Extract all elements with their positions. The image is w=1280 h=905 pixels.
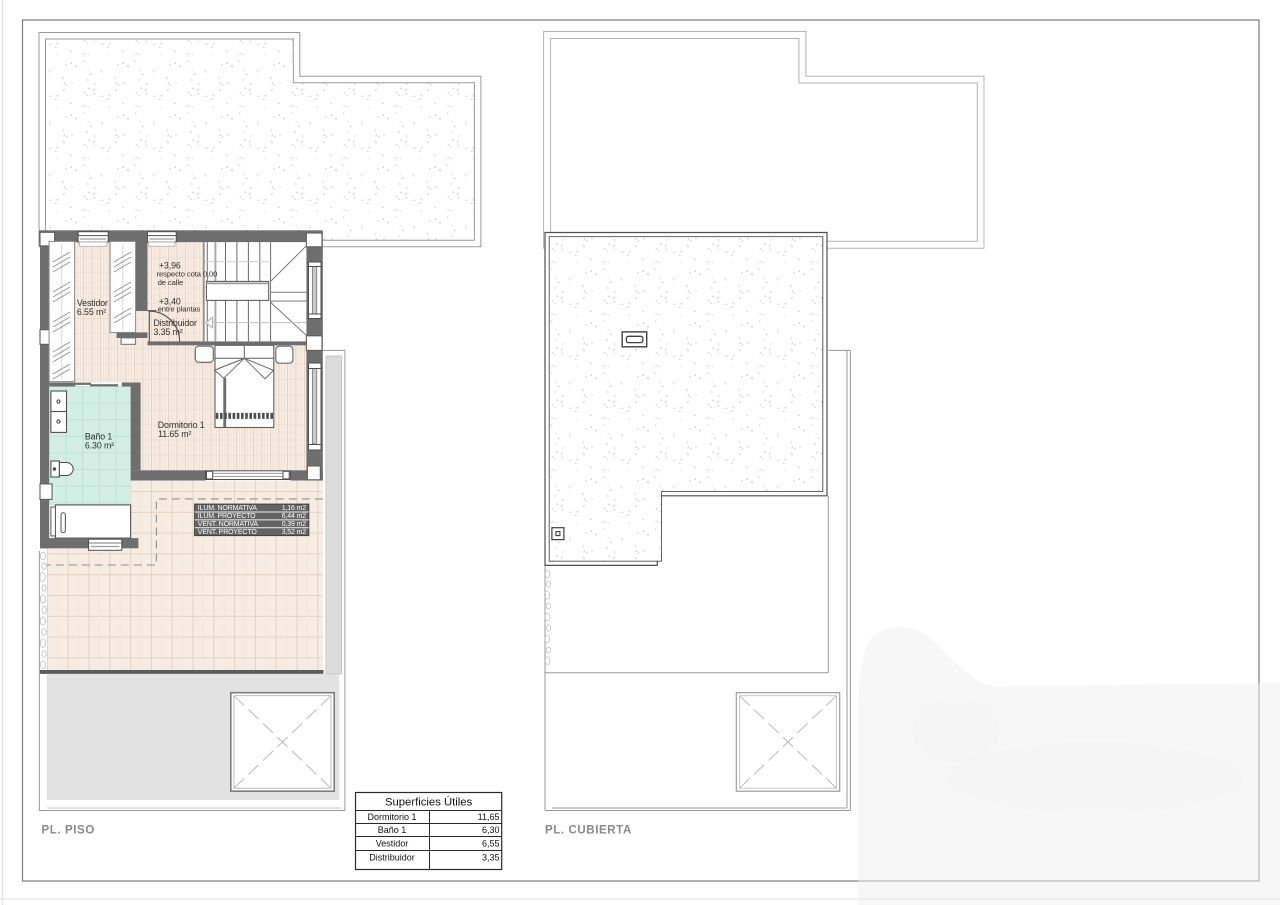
svg-text:3,35: 3,35 [482,853,500,863]
svg-text:ILUM. NORMATIVA: ILUM. NORMATIVA [198,505,257,512]
svg-text:3.35 m²: 3.35 m² [154,327,183,337]
svg-text:Superficies Útiles: Superficies Útiles [385,796,473,809]
svg-text:6,30: 6,30 [482,825,500,835]
svg-text:ILUM. PROYECTO: ILUM. PROYECTO [198,513,256,520]
svg-text:VENT. NORMATIVA: VENT. NORMATIVA [198,521,259,528]
svg-text:11,65: 11,65 [478,812,500,822]
svg-text:Dormitorio 1: Dormitorio 1 [367,812,416,822]
svg-text:6.30 m²: 6.30 m² [85,441,114,451]
svg-text:3,52 m2: 3,52 m2 [282,529,306,536]
svg-text:1,16 m2: 1,16 m2 [282,505,306,512]
svg-text:6,55: 6,55 [482,839,500,849]
svg-text:Vestidor: Vestidor [376,839,409,849]
svg-text:VENT. PROYECTO: VENT. PROYECTO [198,529,258,536]
svg-text:Distribuidor: Distribuidor [369,853,415,863]
svg-text:PL. CUBIERTA: PL. CUBIERTA [545,825,632,837]
svg-text:11.65 m²: 11.65 m² [158,429,191,439]
svg-text:Baño 1: Baño 1 [378,825,407,835]
svg-text:6,44 m2: 6,44 m2 [282,513,306,520]
svg-text:PL. PISO: PL. PISO [42,825,95,837]
svg-text:0,39 m2: 0,39 m2 [282,521,306,528]
svg-text:6.55 m²: 6.55 m² [77,307,106,317]
svg-text:de calle: de calle [158,278,183,287]
svg-text:entre plantas: entre plantas [158,305,201,314]
